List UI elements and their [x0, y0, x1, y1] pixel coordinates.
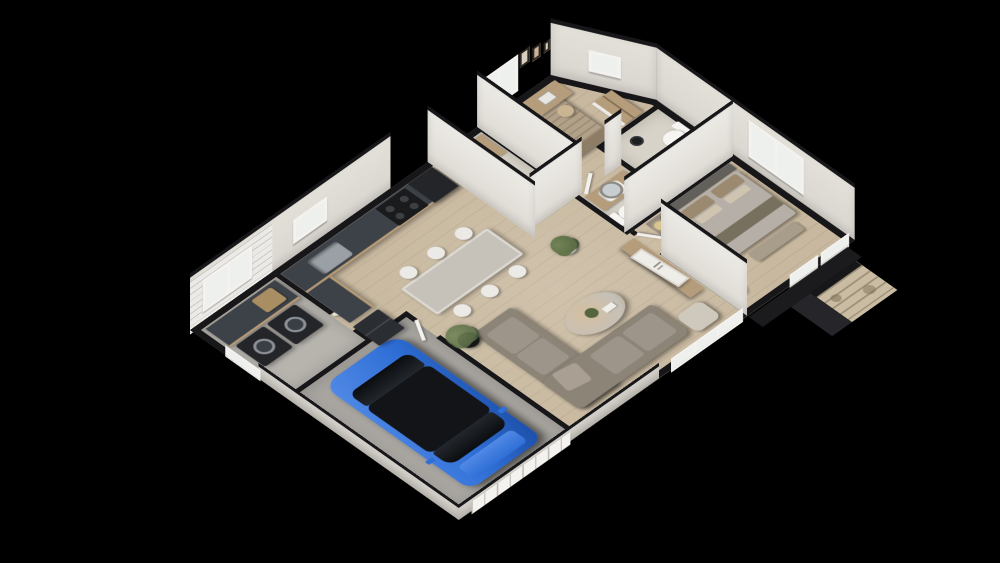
porch-dark-wall: [791, 293, 852, 336]
wall-garage-laundry: [392, 311, 410, 324]
floorplan-scene: [0, 0, 1000, 563]
laundry-door: [333, 311, 361, 316]
powder-shelf: [474, 134, 507, 157]
wall-art-frame: [544, 39, 550, 54]
hall-plant-pot: [551, 236, 582, 258]
master-window-bottom: [790, 255, 818, 289]
wardrobe-guest: [592, 90, 643, 126]
powder-toilet-tank: [450, 143, 478, 163]
burner: [408, 202, 421, 211]
burner: [384, 205, 397, 214]
dining-chair: [423, 244, 448, 262]
wall-master-left: [630, 230, 638, 236]
table-lamp: [652, 220, 669, 232]
media-console: [620, 238, 705, 298]
bath-sink: [596, 179, 630, 203]
round-mirror: [594, 178, 628, 202]
dining-chair: [477, 282, 502, 300]
porch-roof-slab: [749, 247, 862, 327]
kitchen-counter-side-run: [307, 276, 373, 323]
kitchen-tall-unit: [408, 167, 459, 203]
master-bed: [665, 163, 798, 257]
wall-guestbed-bottom-face: [604, 108, 621, 177]
coffee-table-books: [602, 302, 618, 313]
dining-chair: [450, 302, 475, 320]
wall-face-chamfer: [551, 18, 657, 100]
dining-table: [401, 228, 524, 315]
bath-vanity: [585, 170, 643, 211]
porch-stone-pillar: [811, 261, 897, 322]
fan: [627, 134, 647, 148]
wardrobe-door-line: [602, 96, 635, 119]
hall-plant: [545, 232, 582, 258]
sign-text-line: [657, 265, 664, 270]
coffee-table-plant: [582, 306, 602, 320]
laundry-basket: [251, 287, 288, 313]
wall-top-edge: [190, 73, 559, 334]
guestbed-door: [584, 173, 593, 194]
wall-ensuite-left: [661, 190, 674, 199]
sofa-cushion: [589, 335, 646, 375]
ensuite-toilet-bowl: [658, 127, 691, 150]
powder-toilet-bowl: [459, 150, 493, 174]
ensuite-toilet-tank: [671, 121, 699, 141]
floor-plan: [190, 50, 855, 520]
bath-toilet-bowl: [614, 201, 644, 222]
kitchen-window: [293, 196, 327, 244]
wall-face-top: [190, 18, 551, 330]
burner: [394, 212, 407, 221]
ensuite-window: [589, 50, 621, 79]
wall-garage: [402, 311, 418, 322]
master-window-bottom: [821, 233, 849, 267]
sign-text-line: [653, 261, 661, 267]
wall-ensuite-top: [599, 104, 661, 148]
wall-bath-left: [575, 195, 627, 232]
nightstand: [645, 212, 680, 237]
bath-toilet-tank: [609, 212, 629, 226]
wall-powder: [498, 200, 514, 211]
render-canvas: [0, 0, 1000, 563]
master-door: [636, 233, 668, 240]
wall-art-frame: [520, 46, 530, 69]
wall-powder: [532, 176, 548, 187]
wall-laundry: [271, 270, 335, 315]
powder-door: [511, 197, 541, 204]
wall-ensuite-left: [596, 144, 645, 179]
dining-chair: [505, 263, 530, 281]
dining-chair: [396, 264, 421, 282]
kitchen-sink: [306, 241, 354, 275]
kitchen-range: [375, 188, 429, 226]
decor-sign: [630, 248, 689, 287]
burner: [398, 195, 411, 204]
room-bathroom: [583, 169, 668, 229]
dining-chair: [451, 225, 476, 243]
ensuite-door: [642, 177, 651, 197]
kitchen-counter-top-run: [281, 167, 459, 293]
wall-art-frame: [532, 42, 540, 61]
